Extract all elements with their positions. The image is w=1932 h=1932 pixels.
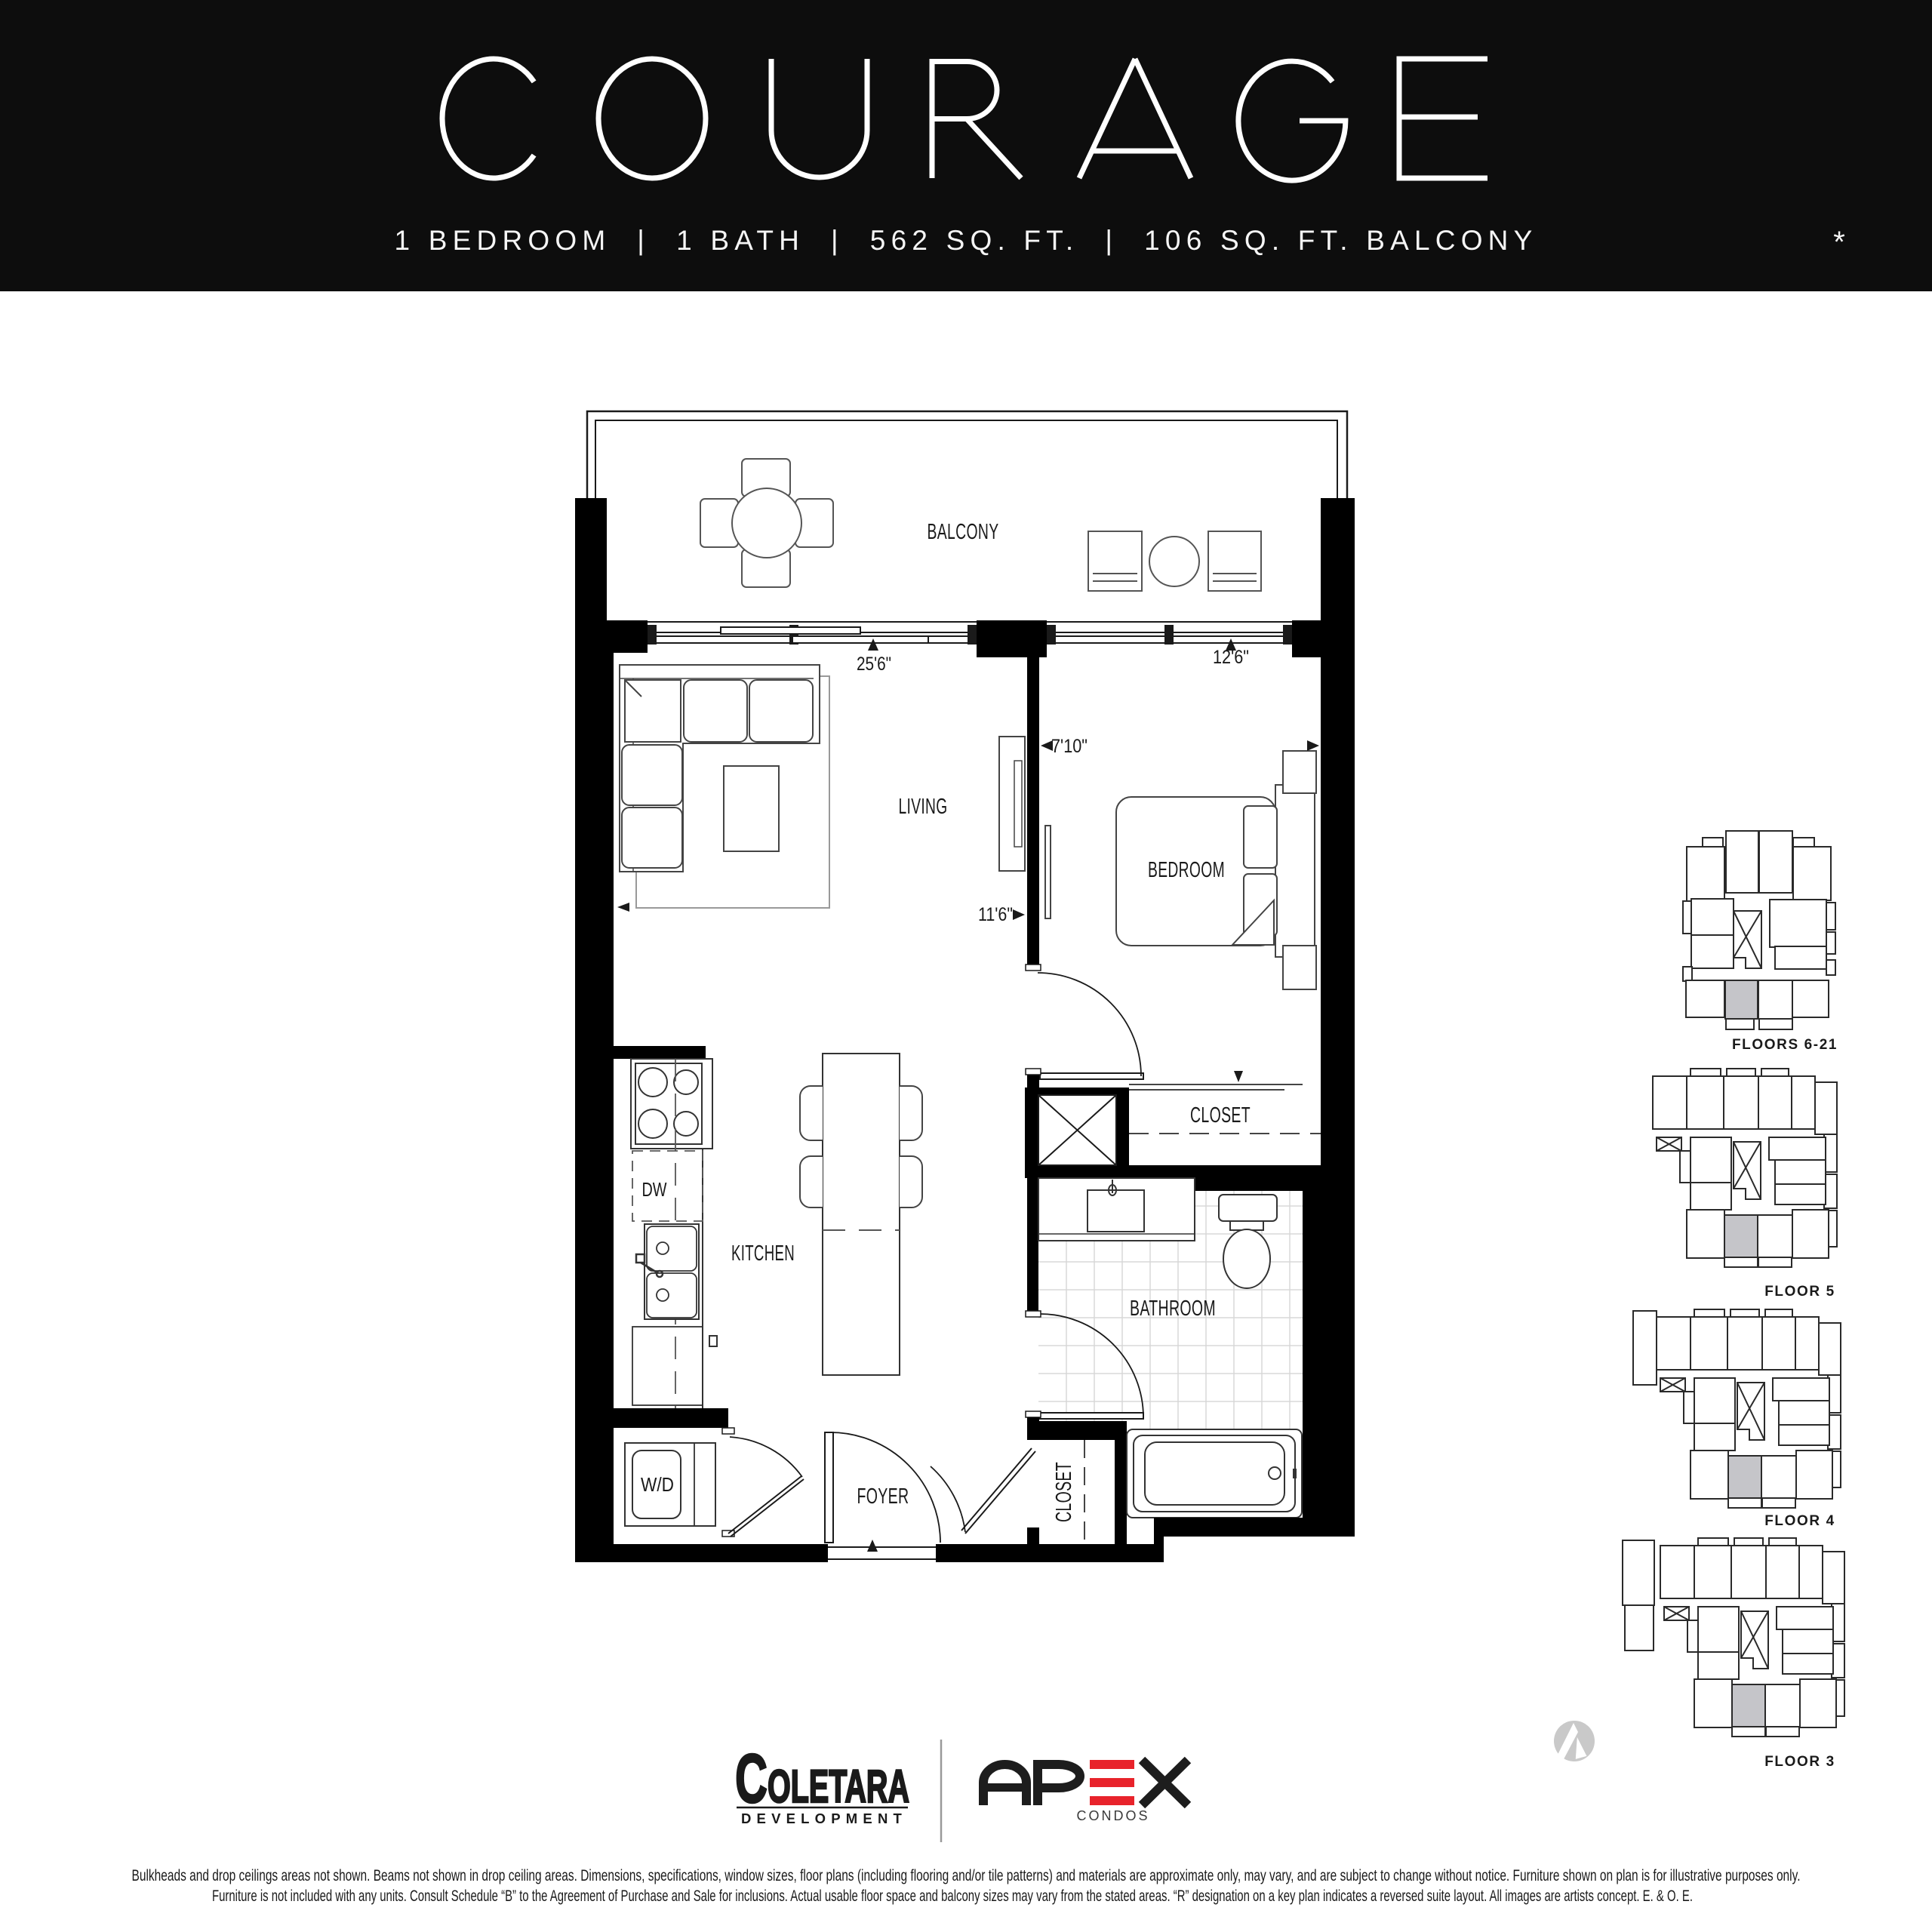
svg-text:1 BEDROOM | 1 BATH | 562 S: 1 BEDROOM | 1 BATH | 562 SQ. FT. | 106 S… <box>395 225 1538 256</box>
svg-text:11'6": 11'6" <box>978 904 1013 925</box>
svg-text:FLOOR 4: FLOOR 4 <box>1764 1513 1835 1529</box>
svg-text:KITCHEN: KITCHEN <box>731 1241 795 1266</box>
svg-text:Bulkheads and drop ceilings ar: Bulkheads and drop ceilings areas not sh… <box>132 1867 1801 1884</box>
svg-text:BALCONY: BALCONY <box>928 520 999 544</box>
svg-text:7'10": 7'10" <box>1051 736 1088 757</box>
svg-text:CLOSET: CLOSET <box>1052 1462 1076 1522</box>
svg-text:DEVELOPMENT: DEVELOPMENT <box>741 1811 907 1826</box>
svg-text:CONDOS: CONDOS <box>1076 1808 1149 1823</box>
svg-text:Furniture is not included with: Furniture is not included with any units… <box>212 1887 1693 1905</box>
svg-text:BATHROOM: BATHROOM <box>1130 1297 1216 1321</box>
svg-text:25'6": 25'6" <box>857 654 891 675</box>
svg-text:FLOORS 6-21: FLOORS 6-21 <box>1732 1037 1838 1053</box>
svg-text:DW: DW <box>642 1178 667 1201</box>
svg-text:FOYER: FOYER <box>857 1484 909 1509</box>
svg-text:FLOOR 3: FLOOR 3 <box>1764 1754 1835 1770</box>
svg-text:*: * <box>1833 226 1845 259</box>
svg-text:W/D: W/D <box>641 1473 674 1496</box>
svg-text:FLOOR 5: FLOOR 5 <box>1764 1284 1835 1300</box>
svg-text:CLOSET: CLOSET <box>1190 1103 1251 1128</box>
svg-text:BEDROOM: BEDROOM <box>1148 858 1225 882</box>
svg-text:LIVING: LIVING <box>899 795 948 819</box>
